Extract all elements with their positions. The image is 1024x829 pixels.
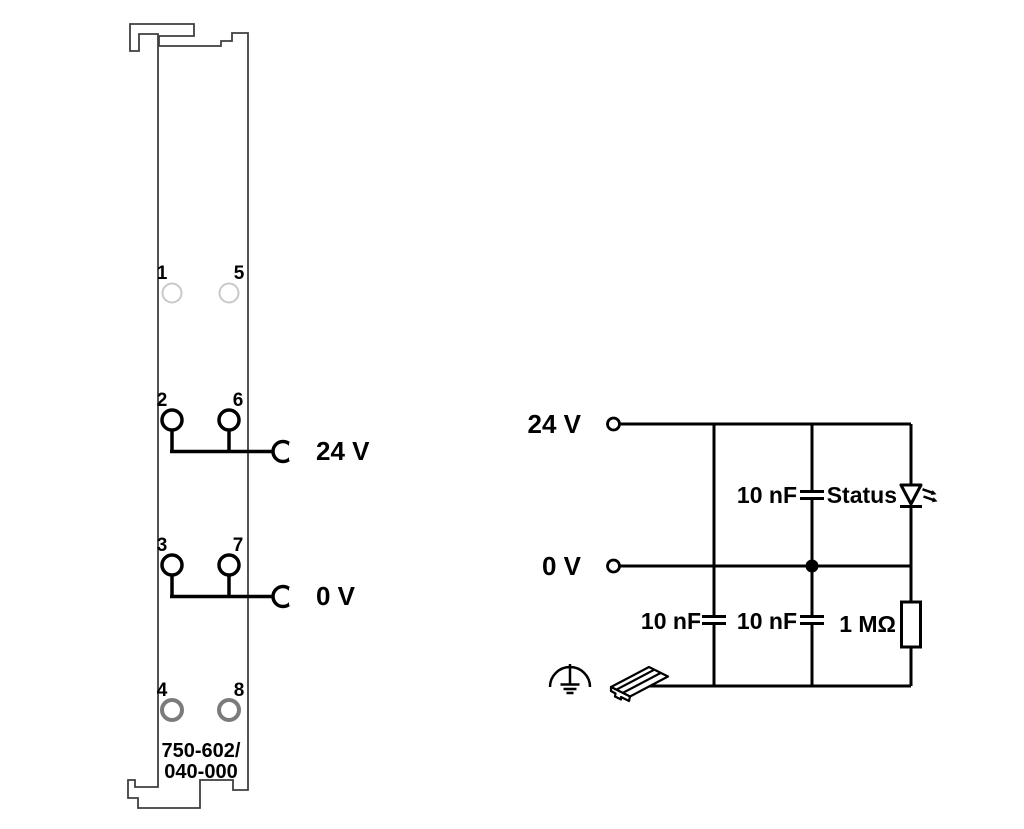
connector-arc-0v-icon — [273, 587, 299, 607]
terminal-4-circle-icon — [162, 700, 182, 720]
module-drawing: 1 5 2 6 24 V 3 7 — [128, 24, 370, 808]
terminal-7-circle-icon — [219, 555, 239, 575]
circuit-schematic: 24 V 0 V 10 nF 10 nF — [528, 409, 938, 711]
resistor-label: 1 MΩ — [839, 611, 896, 637]
terminal-1-number: 1 — [157, 263, 168, 284]
terminal-open-circle-0v-icon — [608, 560, 620, 572]
capacitor-bottom-mid-label: 10 nF — [737, 608, 797, 634]
wire-24v — [170, 429, 273, 452]
resistor-icon — [902, 602, 921, 647]
wire-0v — [170, 574, 273, 597]
status-led-icon — [900, 485, 938, 507]
terminal-7-number: 7 — [233, 535, 244, 556]
rail-0v-label: 0 V — [542, 551, 582, 581]
terminal-3-circle-icon — [162, 555, 182, 575]
connector-arc-24v-icon — [273, 442, 299, 462]
diagram-canvas: 1 5 2 6 24 V 3 7 — [0, 0, 1024, 829]
din-rail-icon — [611, 667, 668, 701]
functional-earth-icon — [546, 664, 594, 711]
terminal-4-number: 4 — [157, 680, 168, 701]
module-24v-label: 24 V — [316, 436, 370, 466]
terminal-row-2: 2 6 24 V — [157, 390, 370, 466]
rail-24v-label: 24 V — [528, 409, 582, 439]
terminal-row-3: 3 7 0 V — [157, 535, 356, 611]
capacitor-top-label: 10 nF — [737, 482, 797, 508]
terminal-row-1: 1 5 — [157, 263, 245, 303]
terminal-5-circle-icon — [220, 284, 239, 303]
terminal-2-number: 2 — [157, 390, 168, 411]
terminal-1-circle-icon — [163, 284, 182, 303]
terminal-2-circle-icon — [162, 410, 182, 430]
terminal-6-number: 6 — [233, 390, 244, 411]
terminal-6-circle-icon — [219, 410, 239, 430]
terminal-8-circle-icon — [219, 700, 239, 720]
wiring-diagram: 1 5 2 6 24 V 3 7 — [0, 0, 1024, 829]
terminal-5-number: 5 — [234, 263, 245, 284]
terminal-3-number: 3 — [157, 535, 168, 556]
capacitor-bottom-mid-icon — [800, 617, 824, 624]
module-0v-label: 0 V — [316, 581, 356, 611]
capacitor-top-icon — [800, 492, 824, 499]
capacitor-bottom-left-icon — [702, 617, 726, 624]
terminal-open-circle-24v-icon — [608, 418, 620, 430]
module-part-number-line1: 750-602/ — [162, 740, 241, 762]
module-outline — [128, 24, 248, 808]
terminal-8-number: 8 — [234, 680, 245, 701]
capacitor-bottom-left-label: 10 nF — [641, 608, 701, 634]
status-led-label: Status — [827, 482, 897, 508]
terminal-row-4: 4 8 — [157, 680, 245, 720]
module-part-number-line2: 040-000 — [164, 761, 237, 783]
junction-dot — [806, 560, 819, 573]
